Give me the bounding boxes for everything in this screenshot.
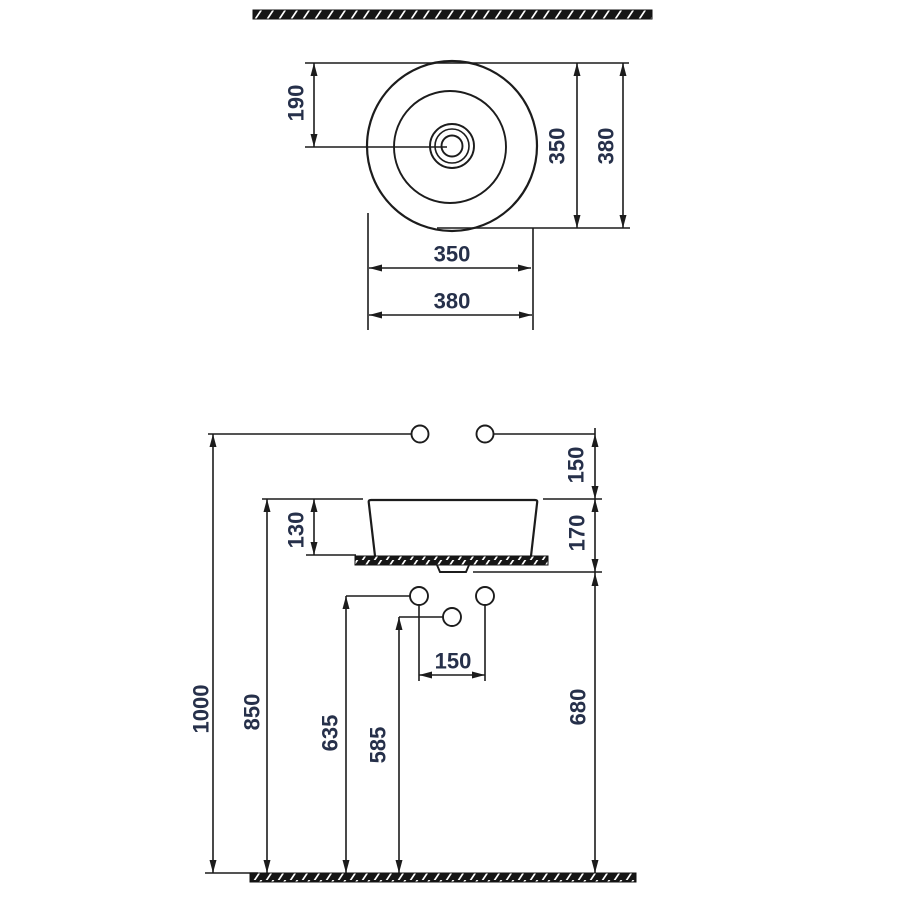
arrow-left-icon bbox=[369, 265, 382, 272]
arrow-up-icon bbox=[592, 434, 599, 447]
arrow-down-icon bbox=[210, 860, 217, 873]
dim-label-overall-vertical: 380 bbox=[594, 128, 619, 165]
drain-inner-circle bbox=[442, 136, 463, 157]
arrow-down-icon bbox=[396, 860, 403, 873]
arrow-down-icon bbox=[574, 215, 581, 228]
arrow-down-icon bbox=[592, 559, 599, 572]
dim-label-overall-horizontal: 380 bbox=[434, 289, 471, 314]
outlet-hole-left-circle bbox=[410, 587, 428, 605]
dim-label-outlet-spacing: 150 bbox=[435, 649, 472, 674]
dim-label-drain-height: 680 bbox=[566, 689, 591, 726]
top-view: 190 350 380 350 380 bbox=[253, 10, 652, 330]
dim-label-rim-height: 850 bbox=[240, 694, 265, 731]
supply-hole-left-circle bbox=[412, 426, 429, 443]
arrow-left-icon bbox=[419, 672, 432, 679]
drain-stub-outline bbox=[437, 565, 469, 572]
basin-outer-rim-circle bbox=[367, 61, 537, 231]
arrow-up-icon bbox=[343, 596, 350, 609]
floor-section-bar bbox=[250, 873, 636, 882]
dim-label-center-offset: 190 bbox=[284, 85, 309, 122]
technical-drawing-svg: 190 350 380 350 380 bbox=[0, 0, 900, 900]
arrow-down-icon bbox=[264, 860, 271, 873]
arrow-up-icon bbox=[396, 617, 403, 630]
wall-section-bar bbox=[253, 10, 652, 19]
arrow-up-icon bbox=[620, 63, 627, 76]
dim-label-inner-horizontal: 350 bbox=[434, 242, 471, 267]
arrow-down-icon bbox=[592, 860, 599, 873]
dim-label-outlet-height-left: 635 bbox=[318, 715, 343, 752]
dim-label-outlet-height-center: 585 bbox=[366, 727, 391, 764]
dim-label-rim-to-drain-level: 170 bbox=[565, 515, 590, 552]
countertop-section-bar bbox=[355, 556, 548, 565]
arrow-left-icon bbox=[369, 312, 382, 319]
arrow-up-icon bbox=[264, 499, 271, 512]
dim-label-supply-height: 1000 bbox=[189, 685, 214, 734]
arrow-up-icon bbox=[311, 499, 318, 512]
arrow-down-icon bbox=[311, 542, 318, 555]
arrow-right-icon bbox=[472, 672, 485, 679]
dim-label-basin-height: 130 bbox=[284, 512, 309, 549]
basin-profile-outline bbox=[369, 500, 538, 556]
arrow-right-icon bbox=[518, 265, 531, 272]
front-view: 1000 850 130 150 170 680 635 bbox=[189, 426, 637, 883]
arrow-down-icon bbox=[620, 215, 627, 228]
dim-label-inner-vertical: 350 bbox=[545, 128, 570, 165]
arrow-right-icon bbox=[519, 312, 532, 319]
arrow-up-icon bbox=[574, 63, 581, 76]
outlet-hole-center-circle bbox=[443, 608, 461, 626]
arrow-up-icon bbox=[592, 499, 599, 512]
arrow-up-icon bbox=[311, 63, 318, 76]
technical-drawing-page: 190 350 380 350 380 bbox=[0, 0, 900, 900]
arrow-up-icon bbox=[210, 434, 217, 447]
arrow-down-icon bbox=[343, 860, 350, 873]
supply-hole-right-circle bbox=[477, 426, 494, 443]
drain-outer-circle bbox=[430, 124, 474, 168]
drain-middle-circle bbox=[435, 129, 469, 163]
arrow-down-icon bbox=[592, 486, 599, 499]
dim-label-supply-to-rim: 150 bbox=[564, 447, 589, 484]
arrow-up-icon bbox=[592, 573, 599, 586]
arrow-down-icon bbox=[311, 134, 318, 147]
outlet-hole-right-circle bbox=[476, 587, 494, 605]
